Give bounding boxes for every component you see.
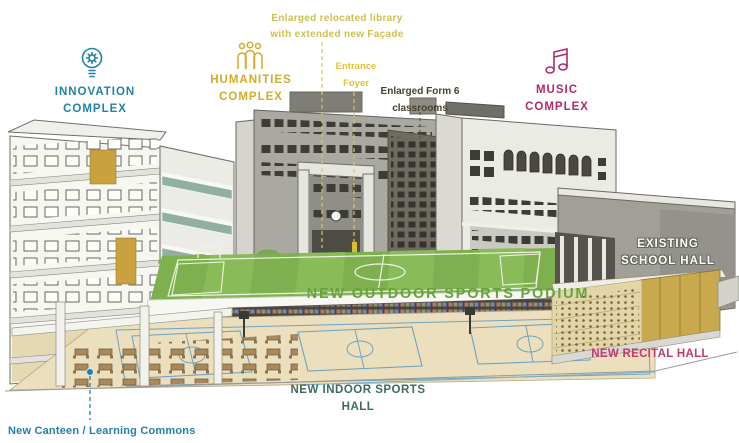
humanities-line2: COMPLEX [203, 89, 299, 106]
humanities-complex-label: HUMANITIES COMPLEX [203, 72, 299, 105]
existing-hall-line1: EXISTING [612, 236, 724, 253]
form6-line2: classrooms [372, 100, 468, 117]
existing-school-hall-label: EXISTING SCHOOL HALL [612, 236, 724, 271]
form6-classrooms-label: Enlarged Form 6 classrooms [372, 83, 468, 117]
music-line1: MUSIC [521, 82, 593, 99]
library-note-line2: with extended new Façade [247, 27, 427, 43]
indoor-hall-label: NEW INDOOR SPORTS HALL [278, 382, 438, 415]
library-note-label: Enlarged relocated library with extended… [247, 11, 427, 43]
foyer-line1: Entrance [330, 59, 382, 76]
humanities-line1: HUMANITIES [203, 72, 299, 89]
innovation-line2: COMPLEX [39, 101, 151, 118]
music-complex-label: MUSIC COMPLEX [521, 82, 593, 115]
recital-hall-label: NEW RECITAL HALL [590, 346, 710, 363]
innovation-complex-label: INNOVATION COMPLEX [39, 84, 151, 117]
canteen-marker-dot [87, 369, 94, 376]
library-note-line1: Enlarged relocated library [247, 11, 427, 27]
lightbulb-gear-icon [78, 46, 106, 85]
form6-line1: Enlarged Form 6 [372, 83, 468, 100]
existing-hall-line2: SCHOOL HALL [612, 253, 724, 270]
campus-rendering-stage: Enlarged relocated library with extended… [0, 0, 739, 443]
music-line2: COMPLEX [521, 99, 593, 116]
innovation-line1: INNOVATION [39, 84, 151, 101]
canteen-label: New Canteen / Learning Commons [8, 424, 238, 440]
outdoor-podium-label: NEW OUTDOOR SPORTS PODIUM [248, 284, 648, 305]
music-notes-icon [543, 44, 571, 81]
